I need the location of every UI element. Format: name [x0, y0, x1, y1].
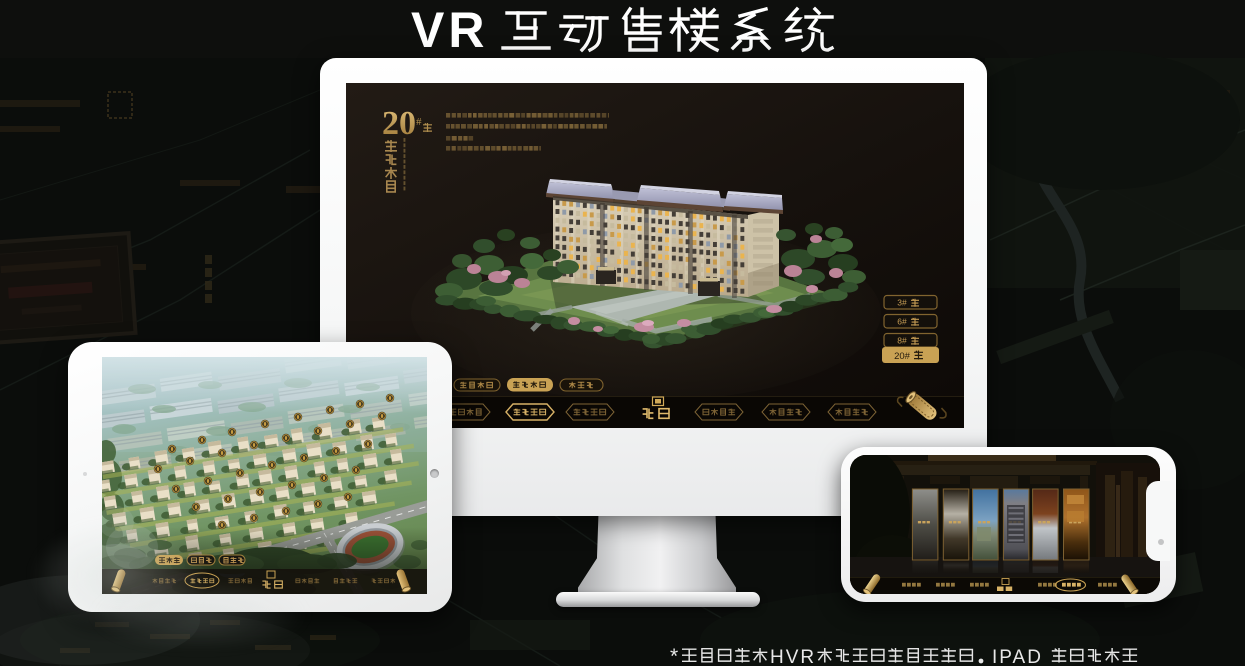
- svg-text:6#: 6#: [897, 317, 907, 327]
- svg-text:VR: VR: [411, 2, 488, 58]
- svg-text:HVR: HVR: [770, 647, 816, 666]
- svg-text:20#: 20#: [894, 351, 911, 362]
- svg-text:20: 20: [382, 105, 416, 142]
- svg-text:3#: 3#: [897, 298, 907, 308]
- svg-text:8#: 8#: [897, 336, 907, 346]
- svg-text:*: *: [670, 645, 678, 666]
- svg-text:#: #: [416, 116, 422, 128]
- svg-text:IPAD: IPAD: [992, 647, 1043, 666]
